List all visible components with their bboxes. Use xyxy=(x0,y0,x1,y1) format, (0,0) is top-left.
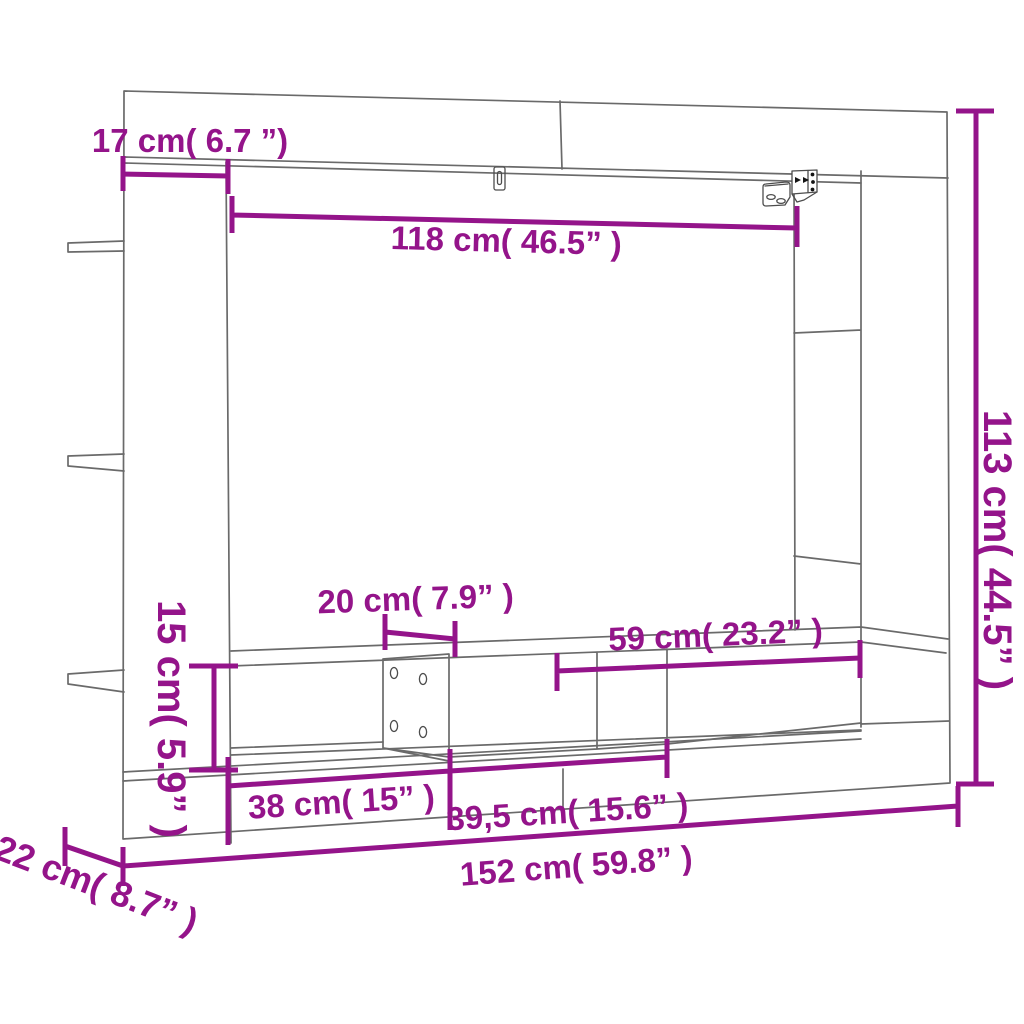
dimension-annotations: 17 cm( 6.7 ”) 118 cm( 46.5” ) 113 cm( 44… xyxy=(0,111,1019,942)
media-shelf-row xyxy=(231,627,949,757)
dim-overall-height-label: 113 cm( 44.5” ) xyxy=(975,410,1019,690)
dim-tv-niche-width-label: 118 cm( 46.5” ) xyxy=(390,219,622,262)
dim-overall-depth-label: 22 cm( 8.7” ) xyxy=(0,827,204,942)
dim-overall-width-label: 152 cm( 59.8” ) xyxy=(459,838,694,892)
dim-left-compartment-width: 38 cm( 15” ) xyxy=(228,749,450,845)
dim-top-shelf-depth: 17 cm( 6.7 ”) xyxy=(92,122,288,194)
dim-right-niche-width-label: 59 cm( 23.2” ) xyxy=(607,611,823,657)
dim-tv-niche-width: 118 cm( 46.5” ) xyxy=(232,196,797,262)
diagram-canvas: 17 cm( 6.7 ”) 118 cm( 46.5” ) 113 cm( 44… xyxy=(0,0,1024,1024)
cable-hole xyxy=(390,668,397,679)
dim-line xyxy=(123,156,228,194)
left-wall-shelf-3 xyxy=(68,670,124,692)
support-block xyxy=(383,654,449,761)
keyhole-hanger-icon xyxy=(494,167,505,190)
dim-center-support-width: 20 cm( 7.9” ) xyxy=(317,577,514,657)
wall-mount-bracket-icon xyxy=(763,170,817,206)
dim-top-shelf-depth-label: 17 cm( 6.7 ”) xyxy=(92,122,288,159)
dim-shelf-row-height-label: 15 cm( 5.9” ) xyxy=(149,600,193,838)
cabinet-line-art xyxy=(68,91,950,843)
left-panel-edge xyxy=(226,162,231,843)
cable-hole xyxy=(419,727,426,738)
dim-center-support-width-label: 20 cm( 7.9” ) xyxy=(317,577,514,621)
dim-line xyxy=(385,614,455,657)
dim-overall-height: 113 cm( 44.5” ) xyxy=(956,111,1019,786)
dim-overall-depth: 22 cm( 8.7” ) xyxy=(0,827,204,942)
dim-shelf-row-height: 15 cm( 5.9” ) xyxy=(149,600,238,838)
cable-hole xyxy=(390,721,397,732)
left-wall-shelf-1 xyxy=(68,241,124,252)
dim-middle-compartment-width: 39,5 cm( 15.6” ) xyxy=(445,739,689,837)
cable-hole xyxy=(419,674,426,685)
tv-cabinet-dimension-diagram: 17 cm( 6.7 ”) 118 cm( 46.5” ) 113 cm( 44… xyxy=(0,0,1024,1024)
left-wall-shelf-2 xyxy=(68,454,124,471)
